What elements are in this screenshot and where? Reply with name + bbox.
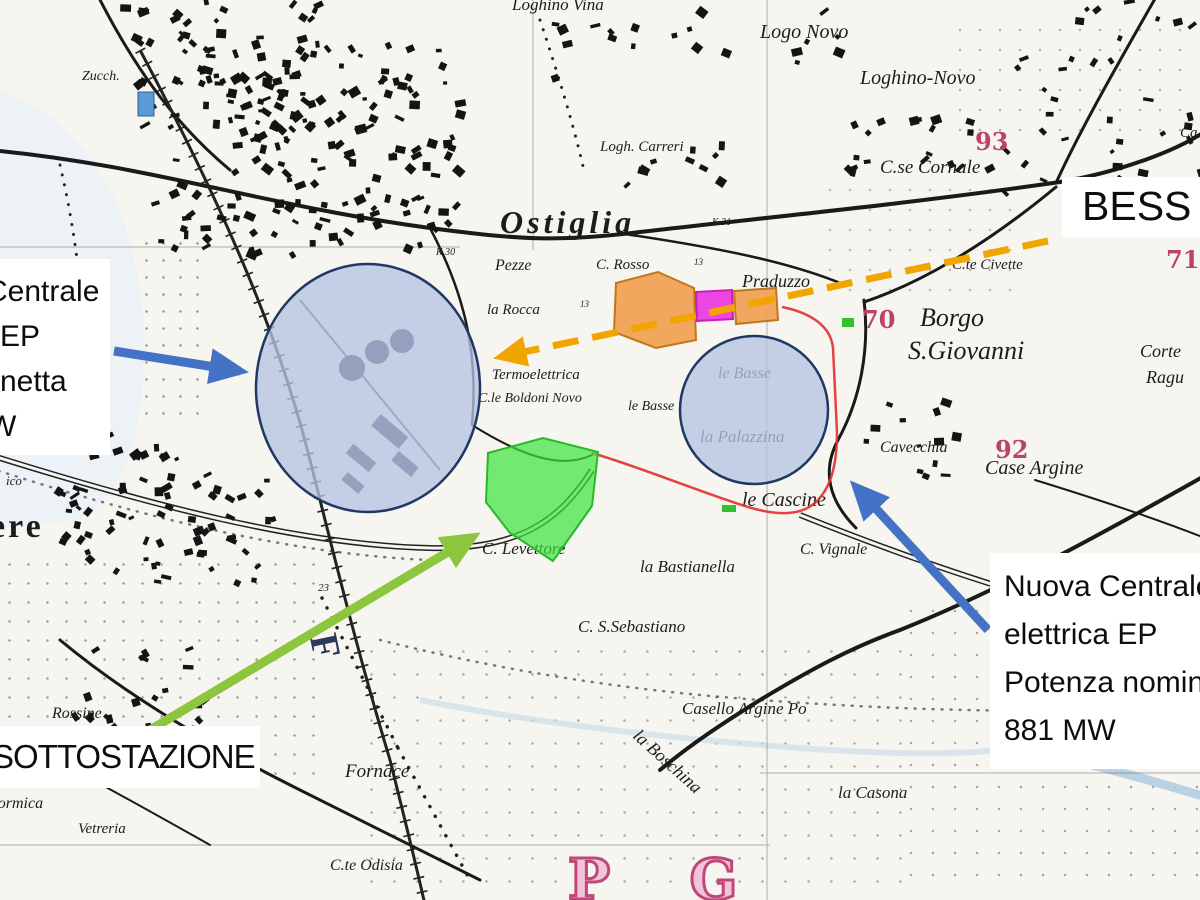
substation-area-green	[486, 438, 598, 561]
existing-plant-label-line: netta	[0, 359, 110, 404]
new-plant-label: Nuova Centrale elettrica EP Potenza nomi…	[990, 553, 1200, 769]
substation-label: SOTTOSTAZIONE	[0, 726, 260, 788]
bess-label: BESS	[1062, 177, 1200, 237]
existing-plant-label-line: EP	[0, 314, 110, 359]
substation-label-text: SOTTOSTAZIONE	[0, 738, 255, 775]
existing-plant-label-line: Centrale	[0, 269, 110, 314]
new-plant-highlight-circle	[680, 336, 828, 484]
existing-plant-label-line: W	[0, 404, 110, 449]
bess-label-text: BESS	[1082, 183, 1191, 229]
new-plant-label-line: 881 MW	[990, 707, 1200, 755]
new-plant-label-line: elettrica EP	[990, 611, 1200, 659]
existing-plant-arrow	[114, 351, 240, 371]
substation-arrow	[130, 537, 473, 742]
new-plant-label-line: Nuova Centrale	[990, 563, 1200, 611]
map-slide: Loghino VinaLogo NovoLoghino-Novo93C.se …	[0, 0, 1200, 900]
existing-plant-highlight-circle	[256, 264, 480, 512]
new-plant-label-line: Potenza nominale	[990, 659, 1200, 707]
site-area-orange-west	[614, 272, 696, 348]
existing-plant-label: Centrale EP netta W	[0, 259, 110, 455]
new-plant-arrow	[856, 487, 988, 630]
